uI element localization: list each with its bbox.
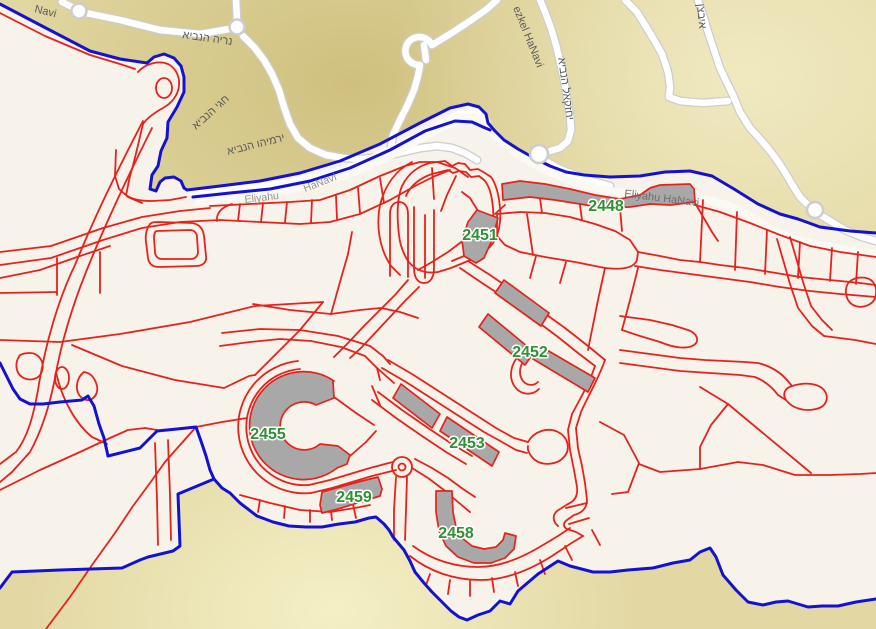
svg-text:2453: 2453 xyxy=(449,435,485,452)
svg-text:2452: 2452 xyxy=(512,344,548,361)
svg-text:2455: 2455 xyxy=(250,426,286,443)
svg-text:2448: 2448 xyxy=(588,198,624,215)
svg-text:2459: 2459 xyxy=(336,489,372,506)
svg-text:איבצן: איבצן xyxy=(694,3,708,29)
svg-text:2458: 2458 xyxy=(438,525,474,542)
svg-text:2451: 2451 xyxy=(462,227,498,244)
